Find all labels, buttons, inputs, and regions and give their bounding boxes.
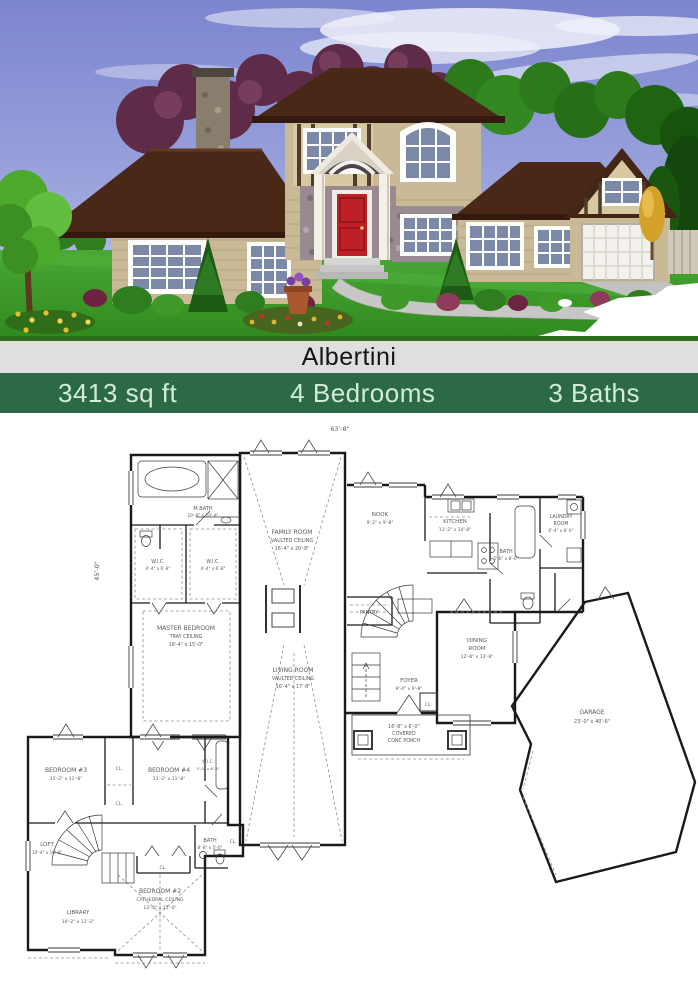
label-wic-2f: W.I.C. bbox=[202, 759, 214, 764]
label-mbath: M.BATH bbox=[193, 506, 212, 512]
label-foyer-cl: CL. bbox=[425, 702, 432, 707]
label-bed4: BEDROOM #4 bbox=[148, 767, 190, 774]
dims-wic1: 4'-4" x 6'-8" bbox=[146, 566, 171, 571]
label-master: MASTER BEDROOM bbox=[157, 625, 215, 632]
label-cl-a: CL. bbox=[115, 766, 122, 772]
entry-steps bbox=[324, 258, 380, 265]
sub-bed2: CATHEDRAL CEILING bbox=[136, 897, 184, 903]
dims-laundry: 6'-4" x 8'-0" bbox=[549, 528, 574, 533]
dims-living-room: 16'-4" x 17'-8" bbox=[276, 684, 311, 690]
label-dining2: ROOM bbox=[468, 646, 485, 652]
dims-wic2: 4'-4" x 6'-8" bbox=[201, 566, 226, 571]
dims-bath-2f: 8'-8" x 5'-0" bbox=[198, 845, 223, 850]
label-living-room: LIVING ROOM bbox=[273, 667, 314, 674]
floor-plans-svg: 63'-8" 45'-0" M.BATH 10'-8" x 10'-8" W.I… bbox=[0, 413, 698, 998]
label-family-room: FAMILY ROOM bbox=[272, 529, 313, 536]
label-pantry: PANTRY bbox=[360, 610, 378, 616]
label-loft: LOFT bbox=[40, 842, 54, 848]
sub-master: TRAY CEILING bbox=[169, 634, 203, 640]
stat-sqft: 3413 sq ft bbox=[58, 378, 177, 409]
label-cl-b: CL. bbox=[115, 801, 122, 807]
dims-loft: 10'-4" x 10'-8" bbox=[32, 850, 62, 855]
dims-mbath: 10'-8" x 10'-8" bbox=[187, 513, 218, 519]
label-kitchen: KITCHEN bbox=[443, 519, 467, 525]
label-garage: GARAGE bbox=[579, 709, 604, 716]
front-door bbox=[337, 194, 367, 256]
yellow-flowers bbox=[5, 310, 95, 334]
label-laundry2: ROOM bbox=[553, 521, 568, 527]
plan-title: Albertini bbox=[302, 343, 397, 372]
label-wic2: W.I.C. bbox=[206, 559, 220, 565]
dims-family-room: 16'-4" x 20'-8" bbox=[275, 546, 310, 552]
label-library: LIBRARY bbox=[67, 910, 90, 916]
dims-library: 10'-2" x 11'-2" bbox=[62, 919, 95, 925]
dims-porch: 16'-8" x 6'-0" bbox=[388, 724, 420, 730]
house-rendering-svg bbox=[0, 0, 698, 341]
label-laundry: LAUNDRY bbox=[550, 514, 573, 520]
dims-master: 16'-4" x 15'-0" bbox=[169, 642, 204, 648]
label-porch: COVERED bbox=[392, 731, 416, 737]
dims-foyer: 9'-4" x 9'-8" bbox=[396, 686, 423, 692]
dims-bed2: 13'-4" x 15'-0" bbox=[143, 905, 176, 911]
dims-nook: 9'-2" x 9'-8" bbox=[367, 520, 394, 526]
stat-bedrooms: 4 Bedrooms bbox=[290, 378, 435, 409]
dim-overall-depth: 45'-0" bbox=[93, 561, 101, 581]
dims-bed3: 11'-2" x 11'-8" bbox=[50, 776, 83, 782]
dims-bed4: 11'-2" x 11'-8" bbox=[153, 776, 186, 782]
label-foyer: FOYER bbox=[400, 678, 418, 684]
title-bar: Albertini bbox=[0, 341, 698, 373]
label-wic1: W.I.C. bbox=[151, 559, 165, 565]
label-bed3: BEDROOM #3 bbox=[45, 767, 87, 774]
dims-garage: 23'-0" x 40'-6" bbox=[574, 719, 610, 725]
flower-pot bbox=[286, 290, 310, 314]
sub-living-room: VAULTED CEILING bbox=[272, 676, 314, 682]
floor-plans: 63'-8" 45'-0" M.BATH 10'-8" x 10'-8" W.I… bbox=[0, 413, 698, 998]
dims-dining: 12'-8" x 13'-8" bbox=[461, 654, 494, 660]
dims-wic-2f: 5'-0" x 6'-8" bbox=[196, 766, 219, 771]
stat-baths: 3 Baths bbox=[548, 378, 640, 409]
label-bath1: BATH bbox=[499, 549, 513, 555]
label-cl-ext: CL. bbox=[230, 839, 237, 844]
house-rendering bbox=[0, 0, 698, 341]
label-porch2: CONC PORCH bbox=[388, 738, 421, 744]
label-cl-bed2: CL. bbox=[159, 865, 166, 871]
dim-overall-width: 63'-8" bbox=[330, 425, 350, 433]
dims-bath1: 5'-6" x 8'-0" bbox=[494, 556, 519, 561]
label-nook: NOOK bbox=[372, 512, 389, 518]
label-dining: DINING bbox=[467, 638, 487, 644]
house-plan-flyer: Albertini 3413 sq ft 4 Bedrooms 3 Baths bbox=[0, 0, 698, 998]
label-bed2: BEDROOM #2 bbox=[139, 888, 181, 895]
dims-kitchen: 11'-2" x 14'-8" bbox=[439, 527, 472, 533]
sub-family-room: VAULTED CEILING bbox=[271, 538, 313, 544]
stats-bar: 3413 sq ft 4 Bedrooms 3 Baths bbox=[0, 373, 698, 413]
label-bath-2f: BATH bbox=[203, 838, 217, 844]
